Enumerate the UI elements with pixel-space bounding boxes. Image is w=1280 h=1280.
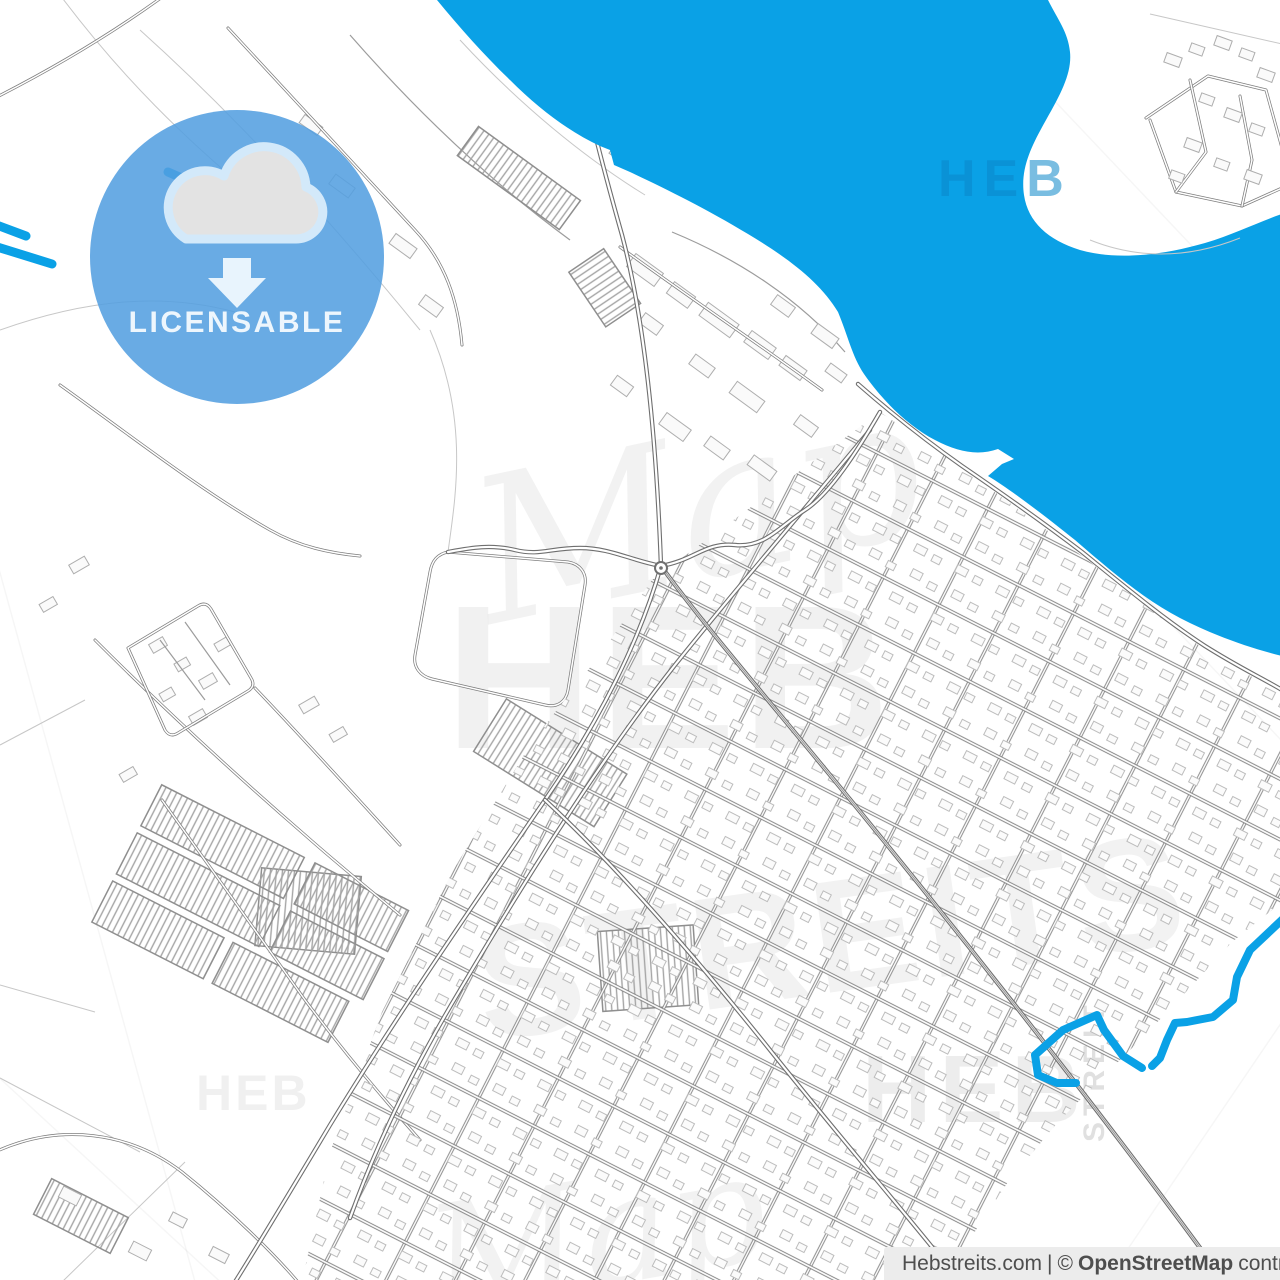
attribution-separator: |: [1047, 1252, 1052, 1276]
watermark-water: HEB: [938, 150, 1072, 208]
attribution-bar: Hebstreits.com | © OpenStreetMap contrib…: [884, 1247, 1280, 1280]
attribution-suffix: contributors: [1238, 1252, 1280, 1276]
osm-link[interactable]: OpenStreetMap: [1078, 1252, 1233, 1276]
badge-label: LICENSABLE: [90, 306, 384, 340]
attribution-source[interactable]: Hebstreits.com: [902, 1252, 1042, 1276]
map-stage: Map HEB STREITS HEB HEB STREIT Map: [0, 0, 1280, 1280]
watermark-bottom-left: HEB: [196, 1065, 311, 1121]
licensable-badge[interactable]: LICENSABLE: [90, 110, 384, 404]
attribution-copyright: ©: [1058, 1252, 1073, 1276]
badge-graphic: [90, 110, 384, 404]
